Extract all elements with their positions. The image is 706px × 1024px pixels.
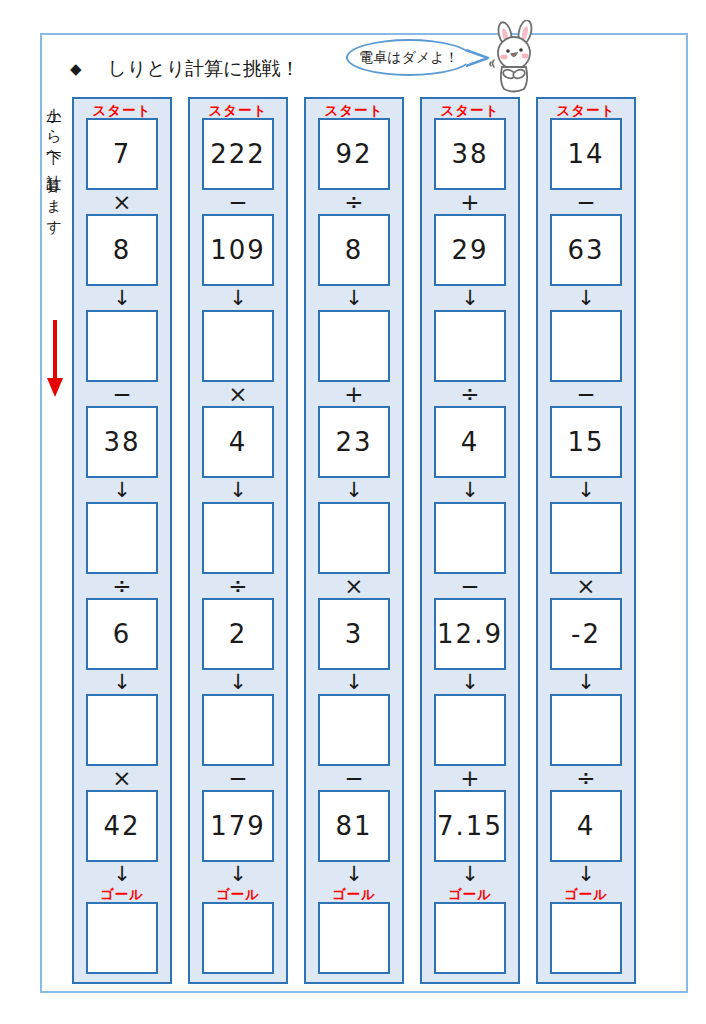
side-instruction-text: 上から下へ計算します [44, 96, 63, 318]
down-arrow-icon: ↓ [461, 478, 479, 502]
answer-box[interactable] [318, 694, 390, 766]
operand-box: 12.9 [434, 598, 506, 670]
operator-symbol: ÷ [576, 766, 595, 790]
start-number-box: 92 [318, 118, 390, 190]
operand-box: 42 [86, 790, 158, 862]
red-down-arrow-icon [47, 320, 63, 398]
answer-box[interactable] [434, 502, 506, 574]
calc-column-1: スタート 7 × 8 ↓ − 38 ↓ ÷ 6 ↓ × 42 ↓ ゴール [72, 97, 172, 984]
operator-symbol: − [576, 382, 595, 406]
start-label: スタート [557, 102, 616, 118]
calc-column-2: スタート 222 − 109 ↓ × 4 ↓ ÷ 2 ↓ − 179 ↓ ゴール [188, 97, 288, 984]
goal-answer-box[interactable] [202, 902, 274, 974]
down-arrow-icon: ↓ [577, 670, 595, 694]
speech-bubble: 電卓はダメよ！ [346, 39, 472, 76]
answer-box[interactable] [318, 502, 390, 574]
goal-label: ゴール [332, 886, 376, 902]
operator-symbol: + [460, 190, 479, 214]
down-arrow-icon: ↓ [577, 286, 595, 310]
answer-box[interactable] [550, 694, 622, 766]
operator-symbol: × [576, 574, 595, 598]
worksheet-columns: スタート 7 × 8 ↓ − 38 ↓ ÷ 6 ↓ × 42 ↓ ゴール スター… [72, 97, 636, 984]
operator-symbol: + [344, 382, 363, 406]
operand-box: 7.15 [434, 790, 506, 862]
operand-box: -2 [550, 598, 622, 670]
operator-symbol: − [228, 190, 247, 214]
operand-box: 29 [434, 214, 506, 286]
answer-box[interactable] [434, 694, 506, 766]
answer-box[interactable] [86, 694, 158, 766]
down-arrow-icon: ↓ [229, 478, 247, 502]
operand-box: 8 [318, 214, 390, 286]
goal-label: ゴール [448, 886, 492, 902]
down-arrow-icon: ↓ [461, 862, 479, 886]
down-arrow-icon: ↓ [345, 286, 363, 310]
operator-symbol: + [460, 766, 479, 790]
start-label: スタート [209, 102, 268, 118]
operand-box: 3 [318, 598, 390, 670]
operator-symbol: − [576, 190, 595, 214]
operator-symbol: ÷ [112, 574, 131, 598]
calc-column-3: スタート 92 ÷ 8 ↓ + 23 ↓ × 3 ↓ − 81 ↓ ゴール [304, 97, 404, 984]
down-arrow-icon: ↓ [345, 862, 363, 886]
goal-label: ゴール [216, 886, 260, 902]
start-label: スタート [441, 102, 500, 118]
start-number-box: 38 [434, 118, 506, 190]
goal-answer-box[interactable] [434, 902, 506, 974]
operator-symbol: × [112, 190, 131, 214]
page-title: ◆ しりとり計算に挑戦！ [70, 56, 300, 82]
operator-symbol: ÷ [460, 382, 479, 406]
operand-box: 179 [202, 790, 274, 862]
answer-box[interactable] [86, 310, 158, 382]
start-number-box: 222 [202, 118, 274, 190]
goal-answer-box[interactable] [550, 902, 622, 974]
operator-symbol: × [112, 766, 131, 790]
operator-symbol: − [228, 766, 247, 790]
goal-label: ゴール [100, 886, 144, 902]
page-title-text: しりとり計算に挑戦！ [108, 56, 300, 82]
operand-box: 15 [550, 406, 622, 478]
goal-label: ゴール [564, 886, 608, 902]
operand-box: 2 [202, 598, 274, 670]
down-arrow-icon: ↓ [461, 286, 479, 310]
answer-box[interactable] [86, 502, 158, 574]
answer-box[interactable] [202, 310, 274, 382]
down-arrow-icon: ↓ [113, 286, 131, 310]
down-arrow-icon: ↓ [229, 286, 247, 310]
operator-symbol: − [344, 766, 363, 790]
down-arrow-icon: ↓ [229, 862, 247, 886]
answer-box[interactable] [434, 310, 506, 382]
down-arrow-icon: ↓ [113, 670, 131, 694]
down-arrow-icon: ↓ [577, 862, 595, 886]
answer-box[interactable] [202, 694, 274, 766]
down-arrow-icon: ↓ [577, 478, 595, 502]
operand-box: 4 [550, 790, 622, 862]
goal-answer-box[interactable] [86, 902, 158, 974]
rabbit-mascot-icon [482, 20, 546, 96]
operator-symbol: − [460, 574, 479, 598]
operand-box: 4 [202, 406, 274, 478]
start-number-box: 14 [550, 118, 622, 190]
operand-box: 81 [318, 790, 390, 862]
operator-symbol: ÷ [228, 574, 247, 598]
start-label: スタート [325, 102, 384, 118]
speech-bubble-text: 電卓はダメよ！ [359, 49, 458, 67]
diamond-bullet-icon: ◆ [70, 60, 82, 78]
answer-box[interactable] [550, 310, 622, 382]
down-arrow-icon: ↓ [345, 478, 363, 502]
start-label: スタート [93, 102, 152, 118]
answer-box[interactable] [318, 310, 390, 382]
operator-symbol: × [344, 574, 363, 598]
operator-symbol: ÷ [344, 190, 363, 214]
operand-box: 8 [86, 214, 158, 286]
operand-box: 109 [202, 214, 274, 286]
operand-box: 63 [550, 214, 622, 286]
down-arrow-icon: ↓ [113, 862, 131, 886]
goal-answer-box[interactable] [318, 902, 390, 974]
down-arrow-icon: ↓ [113, 478, 131, 502]
operand-box: 23 [318, 406, 390, 478]
start-number-box: 7 [86, 118, 158, 190]
calc-column-4: スタート 38 + 29 ↓ ÷ 4 ↓ − 12.9 ↓ + 7.15 ↓ ゴ… [420, 97, 520, 984]
operand-box: 6 [86, 598, 158, 670]
operand-box: 4 [434, 406, 506, 478]
down-arrow-icon: ↓ [345, 670, 363, 694]
answer-box[interactable] [202, 502, 274, 574]
down-arrow-icon: ↓ [461, 670, 479, 694]
operand-box: 38 [86, 406, 158, 478]
operator-symbol: × [228, 382, 247, 406]
operator-symbol: − [112, 382, 131, 406]
calc-column-5: スタート 14 − 63 ↓ − 15 ↓ × -2 ↓ ÷ 4 ↓ ゴール [536, 97, 636, 984]
down-arrow-icon: ↓ [229, 670, 247, 694]
answer-box[interactable] [550, 502, 622, 574]
